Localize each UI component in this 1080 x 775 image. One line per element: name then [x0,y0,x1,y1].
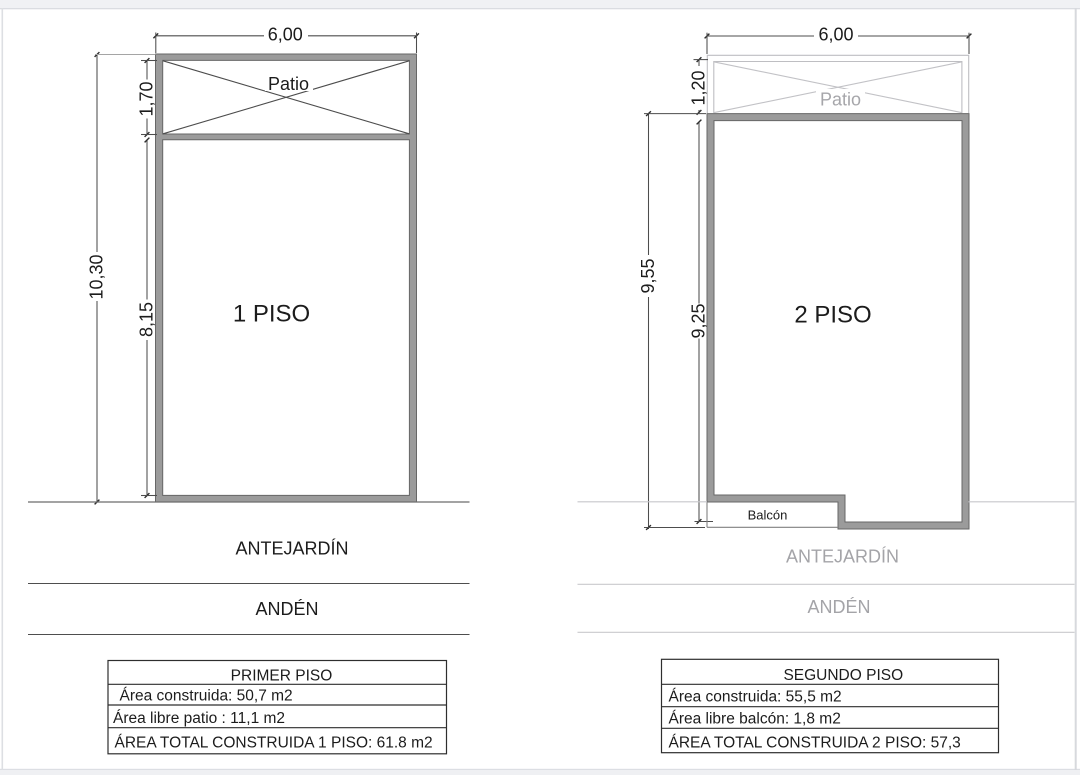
svg-text:Área construida: 50,7 m2: Área construida: 50,7 m2 [120,688,293,705]
svg-text:PRIMER PISO: PRIMER PISO [231,668,333,685]
svg-text:Área libre balcón: 1,8 m2: Área libre balcón: 1,8 m2 [669,711,841,728]
svg-text:ANDÉN: ANDÉN [807,597,870,617]
svg-text:ANTEJARDÍN: ANTEJARDÍN [786,546,899,566]
svg-text:Balcón: Balcón [748,508,788,523]
svg-text:10,30: 10,30 [87,254,107,299]
svg-text:ÁREA TOTAL CONSTRUIDA 1 PISO:: ÁREA TOTAL CONSTRUIDA 1 PISO: 61.8 m2 [115,735,433,752]
svg-text:6,00: 6,00 [268,24,303,44]
svg-text:Área libre patio : 11,1 m2: Área libre patio : 11,1 m2 [113,710,285,727]
svg-text:Área construida: 55,5 m2: Área construida: 55,5 m2 [669,689,842,706]
svg-text:1,70: 1,70 [137,81,157,116]
svg-text:2 PISO: 2 PISO [794,302,871,329]
svg-text:Patio: Patio [820,90,861,110]
svg-text:SEGUNDO PISO: SEGUNDO PISO [783,667,903,684]
svg-text:1 PISO: 1 PISO [233,301,310,328]
svg-text:8,15: 8,15 [137,302,157,337]
svg-text:9,25: 9,25 [689,303,709,338]
svg-text:9,55: 9,55 [638,258,658,293]
svg-text:6,00: 6,00 [818,25,853,45]
svg-text:ÁREA TOTAL CONSTRUIDA 2 PISO:: ÁREA TOTAL CONSTRUIDA 2 PISO: 57,3 [669,735,961,752]
svg-text:ANTEJARDÍN: ANTEJARDÍN [235,539,348,559]
svg-text:1,20: 1,20 [689,70,709,105]
svg-text:Patio: Patio [268,74,309,94]
svg-text:ANDÉN: ANDÉN [255,599,318,619]
